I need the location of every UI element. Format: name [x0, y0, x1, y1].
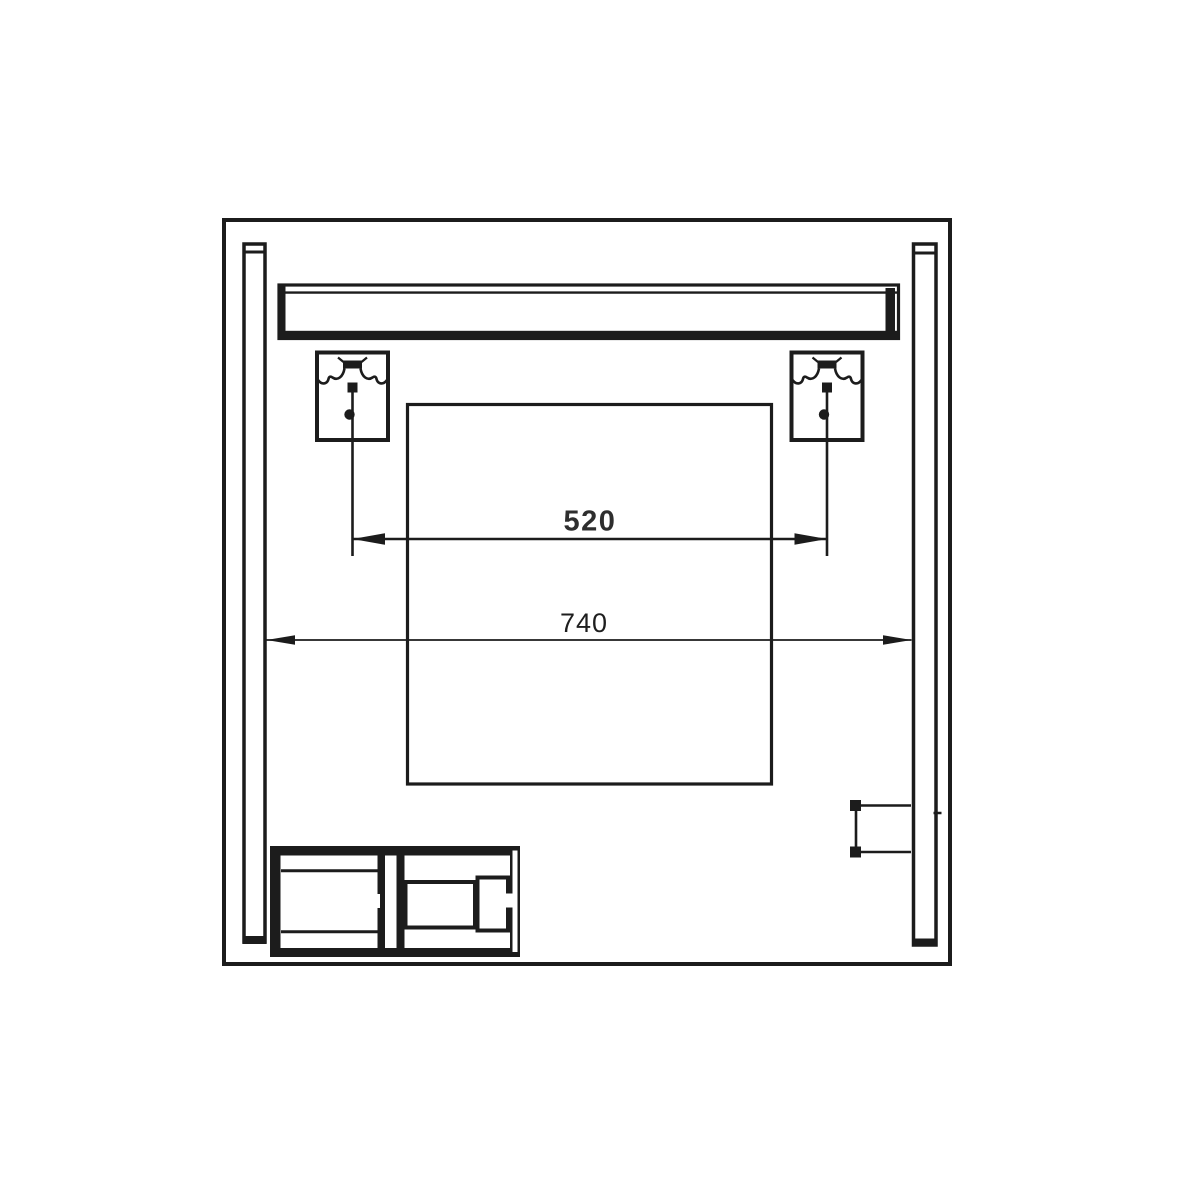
dimension-520: 520 [353, 506, 828, 545]
wall-clip-pin-top [850, 800, 861, 811]
light-bar-bottom-band [279, 331, 899, 339]
right-rail [912, 244, 942, 947]
dimension-740-label: 740 [560, 608, 608, 638]
left-mounting-bracket [317, 353, 388, 557]
dimension-520-arrow-right [795, 533, 828, 545]
right-mounting-bracket [792, 353, 863, 557]
wall-clip-pin-bottom [850, 847, 861, 858]
dimension-520-arrow-left [353, 533, 386, 545]
left-rail [243, 244, 267, 944]
technical-drawing-canvas: 520 740 [0, 0, 1200, 1200]
driver-end-notch [506, 894, 514, 908]
driver-component-b [478, 878, 509, 931]
driver-box [270, 846, 520, 957]
light-bar-right-cap [886, 288, 896, 339]
light-bar [278, 284, 899, 340]
drawing-page: 520 740 [0, 0, 1200, 1200]
right-rail-bottom-cap [912, 939, 938, 947]
mirror-outline [408, 405, 772, 785]
left-rail-bottom-cap [243, 936, 267, 944]
light-bar-left-cap [278, 284, 286, 340]
dimension-520-label: 520 [564, 506, 617, 538]
wall-clip [850, 800, 911, 858]
dimension-740-arrow-left [267, 635, 296, 645]
driver-component-a [406, 882, 476, 928]
dimension-740-arrow-right [883, 635, 912, 645]
driver-divider-notch [374, 894, 380, 908]
driver-divider-right [397, 856, 405, 949]
dimension-740: 740 [267, 608, 912, 645]
